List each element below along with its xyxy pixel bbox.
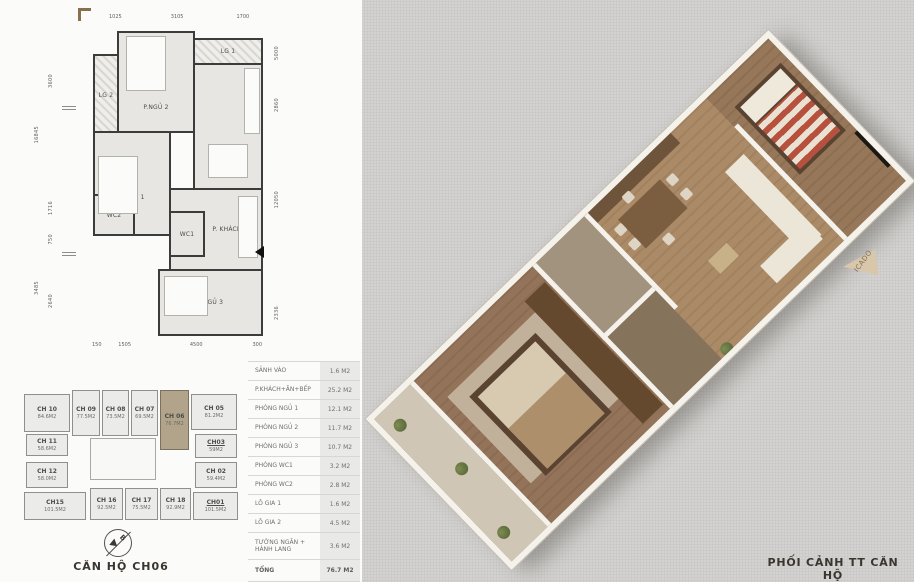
unit-ch18: CH 18 92.9M2 [160, 488, 191, 520]
dim-label: 2336 [274, 306, 280, 320]
plant-icon [452, 460, 470, 478]
row-label: P.KHÁCH+ĂN+BẾP [248, 381, 320, 399]
key-plan: CH 10 84.6M2 CH 09 77.5M2 CH 08 73.5M2 C… [14, 390, 238, 522]
dim-label: 1025 [96, 14, 135, 20]
row-label: SẢNH VÀO [248, 362, 320, 380]
unit-name: CH 18 [166, 497, 186, 504]
room-label: P.NGỦ 2 [143, 104, 168, 111]
dim-row-bottom: 150 1505 4500 300 [88, 342, 266, 348]
unit-ch16: CH 16 92.5M2 [90, 488, 123, 520]
row-label: PHÒNG NGỦ 3 [248, 438, 320, 456]
unit-area: 69.5M2 [135, 414, 154, 420]
table-row: PHÒNG WC1 3.2 M2 [248, 457, 360, 476]
dim-label: 1716 [48, 201, 54, 215]
unit-name: CH 16 [97, 497, 117, 504]
unit-ch02: CH 02 59.4M2 [195, 462, 237, 488]
dim-label: 1700 [220, 14, 266, 20]
dim-label: 2640 [48, 294, 54, 308]
unit-ch10: CH 10 84.6M2 [24, 394, 70, 432]
kitchen-counter-2d [244, 68, 260, 134]
dim-label: 4500 [144, 342, 249, 348]
unit-ch17: CH 17 75.5M2 [125, 488, 158, 520]
row-label: PHÒNG NGỦ 2 [248, 419, 320, 437]
unit-ch05: CH 05 81.2M2 [191, 394, 237, 430]
room-loggia-1: LG 1 [193, 38, 263, 65]
unit-ch15: CH15 101.5M2 [24, 492, 86, 520]
floor-plan-2d: 1025 3105 1700 150 1505 4500 300 16845 3… [28, 6, 360, 358]
unit-area: 81.2M2 [205, 413, 224, 419]
unit-ch03: CH03 59M2 [195, 434, 237, 458]
area-table: SẢNH VÀO 1.6 M2 P.KHÁCH+ĂN+BẾP 25.2 M2 P… [248, 361, 360, 582]
table-row: TƯỜNG NGĂN + HÀNH LANG 3.6 M2 [248, 533, 360, 560]
row-value: 3.6 M2 [320, 533, 360, 559]
dim-tick [62, 252, 76, 253]
unit-area: 101.5M2 [205, 507, 227, 513]
unit-area: 59M2 [209, 447, 223, 453]
room-wc1: WC1 [169, 211, 205, 257]
row-value: 3.2 M2 [320, 457, 360, 475]
unit-name: CH 17 [132, 497, 152, 504]
row-value: 11.7 M2 [320, 419, 360, 437]
row-label: TƯỜNG NGĂN + HÀNH LANG [248, 533, 320, 559]
dim-label: 2860 [274, 98, 280, 112]
unit-ch08: CH 08 73.5M2 [102, 390, 129, 436]
row-label: LÔ GIA 1 [248, 495, 320, 513]
floorplan-sheet: 1025 3105 1700 150 1505 4500 300 16845 3… [0, 0, 914, 582]
unit-name: CH 02 [206, 468, 226, 475]
row-value: 4.5 M2 [320, 514, 360, 532]
unit-ch11: CH 11 58.6M2 [26, 434, 68, 456]
bed-2 [126, 36, 166, 91]
tv-screen [854, 126, 895, 167]
dim-label: 16845 [34, 126, 40, 143]
unit-name: CH 05 [204, 405, 224, 412]
unit-area: 76.7M2 [165, 421, 184, 427]
dim-label: 12050 [274, 191, 280, 208]
unit-ch01: CH01 101.5M2 [193, 492, 238, 520]
unit-area: 84.6M2 [38, 414, 57, 420]
row-value: 12.1 M2 [320, 400, 360, 418]
unit-ch07: CH 07 69.5M2 [131, 390, 158, 436]
room-label: LG 2 [99, 92, 114, 99]
unit-area: 101.5M2 [44, 507, 66, 513]
row-value: 2.8 M2 [320, 476, 360, 494]
unit-area: 73.5M2 [106, 414, 125, 420]
unit-ch06-highlighted: CH 06 76.7M2 [160, 390, 189, 450]
row-value: 10.7 M2 [320, 438, 360, 456]
unit-name: CH15 [46, 499, 64, 506]
plant-icon [718, 340, 736, 358]
unit-name: CH 09 [76, 406, 96, 413]
dim-label: 150 [88, 342, 105, 348]
unit-area: 92.9M2 [166, 505, 185, 511]
unit-ch09: CH 09 77.5M2 [72, 390, 100, 436]
table-row: SẢNH VÀO 1.6 M2 [248, 362, 360, 381]
row-value: 25.2 M2 [320, 381, 360, 399]
dim-tick [62, 255, 76, 256]
entry-arrow-icon [255, 246, 264, 258]
dim-label: 3600 [48, 74, 54, 88]
bed-3 [164, 276, 208, 316]
table-row: P.KHÁCH+ĂN+BẾP 25.2 M2 [248, 381, 360, 400]
compass-north-label: B [118, 533, 127, 542]
dim-tick [62, 109, 76, 110]
row-label: PHÒNG WC2 [248, 476, 320, 494]
unit-name: CH 07 [135, 406, 155, 413]
row-label: PHÒNG NGỦ 1 [248, 400, 320, 418]
dim-label: 5000 [274, 46, 280, 60]
watermark: ICADO [841, 244, 887, 284]
compass-icon: B [104, 529, 132, 557]
unit-name: CH 08 [106, 406, 126, 413]
unit-name: CH01 [207, 499, 225, 506]
dining-table-2d [208, 144, 248, 178]
room-loggia-2: LG 2 [93, 54, 119, 136]
building-core [90, 438, 156, 480]
dim-label: 3485 [34, 281, 40, 295]
table-row-total: TỔNG 76.7 M2 [248, 560, 360, 582]
plant-icon [495, 523, 513, 541]
unit-area: 58.0M2 [38, 476, 57, 482]
table-row: PHÒNG NGỦ 1 12.1 M2 [248, 400, 360, 419]
unit-area: 77.5M2 [77, 414, 96, 420]
unit-name: CH 11 [37, 438, 57, 445]
unit-area: 58.6M2 [38, 446, 57, 452]
key-plan-caption: CĂN HỘ CH06 [40, 560, 202, 573]
table-row: LÔ GIA 2 4.5 M2 [248, 514, 360, 533]
dim-label: 300 [249, 342, 266, 348]
row-label: PHÒNG WC1 [248, 457, 320, 475]
bed-1 [98, 156, 138, 214]
unit-name: CH 10 [37, 406, 57, 413]
room-label: WC1 [180, 231, 195, 238]
dim-label: 3105 [135, 14, 220, 20]
render-3d-apartment [366, 30, 914, 570]
chair [665, 173, 679, 187]
render-caption: PHỐI CẢNH TT CĂN HỘ [756, 556, 910, 582]
dim-row-top: 1025 3105 1700 [96, 14, 266, 20]
row-label: LÔ GIA 2 [248, 514, 320, 532]
chair [679, 187, 693, 201]
compass-wedge [109, 539, 120, 550]
table-row: PHÒNG WC2 2.8 M2 [248, 476, 360, 495]
unit-name: CH 12 [37, 468, 57, 475]
dim-label: 1505 [105, 342, 143, 348]
chair [662, 232, 676, 246]
row-value: 1.6 M2 [320, 495, 360, 513]
coffee-table [708, 243, 739, 274]
unit-area: 75.5M2 [132, 505, 151, 511]
table-row: PHÒNG NGỦ 3 10.7 M2 [248, 438, 360, 457]
unit-area: 59.4M2 [207, 476, 226, 482]
unit-name: CH03 [207, 439, 225, 446]
row-value: 76.7 M2 [320, 560, 360, 581]
dim-label: 750 [48, 234, 54, 244]
unit-area: 92.5M2 [97, 505, 116, 511]
unit-name: CH 06 [165, 413, 185, 420]
row-value: 1.6 M2 [320, 362, 360, 380]
row-label: TỔNG [248, 560, 320, 581]
room-label: LG 1 [221, 48, 236, 55]
table-row: PHÒNG NGỦ 2 11.7 M2 [248, 419, 360, 438]
unit-ch12: CH 12 58.0M2 [26, 462, 68, 488]
dim-tick [62, 106, 76, 107]
plant-icon [391, 416, 409, 434]
crop-mark-icon [78, 8, 91, 21]
table-row: LÔ GIA 1 1.6 M2 [248, 495, 360, 514]
